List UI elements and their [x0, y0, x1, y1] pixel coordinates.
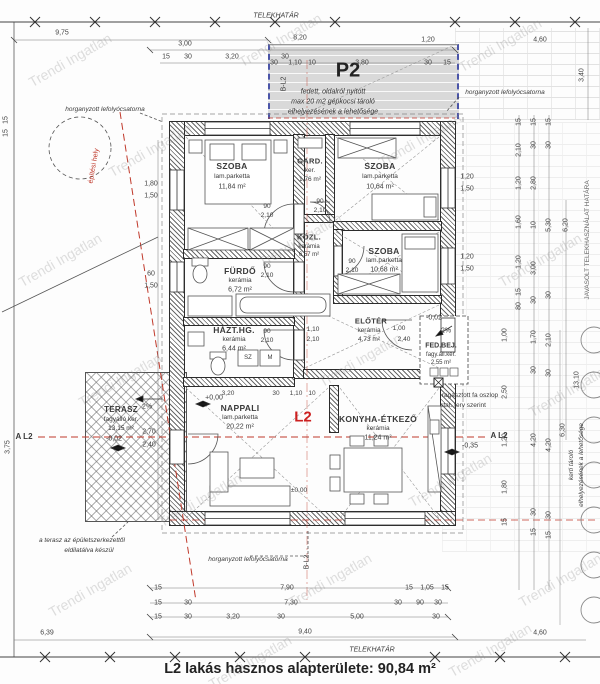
plan-caption: L2 lakás hasznos alapterülete: 90,84 m²: [164, 661, 436, 677]
dim-label: 1,05: [420, 585, 434, 592]
dim-label: 4,20: [531, 433, 538, 447]
door-size: 2,10: [261, 273, 274, 280]
dim-label: 6,30: [560, 423, 567, 437]
appliance-sz: SZ: [244, 355, 252, 361]
room-area-fedbej: 2,55 m²: [431, 360, 451, 366]
dim-label: 1,10: [290, 391, 303, 398]
dim-label: 4,60: [533, 37, 547, 44]
note-terrace-2: eldilatálva készül: [64, 548, 113, 555]
dim-label: 1,80: [502, 480, 509, 494]
door-size: 90: [316, 199, 323, 206]
room-name-szoba3: SZOBA: [368, 247, 399, 256]
room-finish-fedbej: fagy.áll.ker.: [426, 352, 456, 358]
carport-note-line2: max 20 m2 gépkocsi tároló: [291, 99, 375, 106]
dim-label: 2,80: [531, 176, 538, 190]
dim-label: 15: [546, 118, 553, 126]
dim-label: 10: [531, 221, 538, 229]
window-size: 1,50: [460, 266, 474, 273]
dim-label: 1,50: [144, 283, 158, 290]
section-marker-b-l2-top: B-L2: [281, 77, 288, 92]
note-proposed-boundary: JAVASOLT TELEKHASZNÁLAT HATÁRA: [585, 180, 592, 299]
dim-label: 30: [394, 600, 402, 607]
carport-note-line3: elhelyezésének a lehetősége: [288, 109, 378, 116]
dim-label: 3,80: [355, 60, 369, 67]
level-fedbej: -0,02: [426, 315, 442, 322]
dim-label: 1,70: [531, 330, 538, 344]
room-area-kozl: 6,57 m²: [299, 252, 319, 258]
door-size: 2,10: [346, 268, 359, 275]
opening-size: 2,10: [307, 337, 320, 344]
dim-label: 4,60: [533, 630, 547, 637]
window-size: 1,20: [460, 174, 474, 181]
room-finish-szoba3: lam.parketta: [366, 258, 402, 265]
dim-label: 15: [154, 585, 162, 592]
room-area-hazthg: 6,44 m²: [222, 346, 246, 353]
dim-label: 15: [162, 54, 170, 61]
window-size: 1,50: [460, 186, 474, 193]
level-terasz: -0,02: [106, 436, 122, 443]
dim-label: 10: [308, 60, 316, 67]
dim-label: 15: [3, 116, 10, 124]
note-gutter-topleft: horganyzott lefolyócsatorna: [65, 107, 145, 114]
room-area-konyha: 11,24 m²: [364, 435, 391, 442]
dim-label: 6,20: [563, 218, 570, 232]
dim-label: 2,40: [142, 442, 156, 449]
room-finish-nappali: lam.parketta: [222, 415, 258, 422]
room-finish-hazthg: kerámia: [222, 337, 245, 344]
dim-label: 80: [516, 302, 523, 310]
dim-label: 30: [277, 614, 285, 621]
level-outside: -0,35: [462, 443, 478, 450]
dim-label: 30: [434, 600, 442, 607]
dim-label: 30: [531, 508, 538, 516]
dim-label: 15: [441, 585, 449, 592]
room-finish-konyha: kerámia: [366, 426, 389, 433]
room-name-eloter: ELŐTÉR: [355, 317, 387, 325]
section-marker-a-l2-left: A L2: [15, 433, 32, 441]
dim-label: 30: [270, 60, 278, 67]
dim-label: 3,00: [178, 41, 192, 48]
dim-label: 3,75: [5, 440, 12, 454]
dim-label: 1,80: [144, 181, 158, 188]
room-area-szoba3: 10,68 m²: [370, 267, 398, 274]
dim-label: 15: [3, 129, 10, 137]
room-finish-eloter: kerámia: [357, 328, 380, 335]
room-name-hazthg: HÁZT.HG.: [213, 326, 255, 335]
note-gutter-topright: horganyzott lefolyócsatorna: [465, 90, 545, 97]
dim-label: 15: [516, 288, 523, 296]
dim-label: 15: [531, 118, 538, 126]
note-gutter-bottom: horganyzott lefolyócsatorna: [208, 557, 288, 564]
room-area-szoba2: 10,64 m²: [366, 184, 394, 191]
dim-label: 15: [546, 531, 553, 539]
dim-label: 90: [416, 600, 424, 607]
room-name-gard: GARD.: [297, 157, 323, 165]
dim-label: 30: [424, 60, 432, 67]
level-zero: +0,00: [205, 395, 223, 402]
dim-label: 15: [154, 614, 162, 621]
dim-label: 9,40: [298, 629, 312, 636]
unit-label-l2: L2: [294, 409, 312, 426]
room-area-terasz: 13,15 m²: [108, 426, 134, 433]
dim-label: 1,00: [502, 328, 509, 342]
room-name-terasz: TERASZ: [104, 406, 138, 414]
dim-label: 15: [154, 600, 162, 607]
window-size: 1,20: [460, 254, 474, 261]
room-finish-szoba1: lam.parketta: [214, 174, 250, 181]
dim-label: 1,60: [516, 215, 523, 229]
section-marker-b-l2-bottom: B-L2: [304, 555, 311, 570]
dim-label: 4,20: [546, 438, 553, 452]
dim-label: 1,10: [288, 60, 302, 67]
dim-label: 15: [531, 528, 538, 536]
dim-label: 30: [432, 614, 440, 621]
plot-boundary-label-top: TELEKHATÁR: [253, 13, 298, 20]
room-finish-gard: ker.: [305, 168, 315, 175]
dim-label: 3,20: [222, 391, 235, 398]
door-size: 2,10: [314, 208, 327, 215]
door-size: 2,10: [261, 213, 274, 220]
dim-label: 3,40: [579, 68, 586, 82]
dim-label: 1,20: [421, 37, 435, 44]
dim-label: 30: [531, 366, 538, 374]
room-name-fedbej: FED.BEJ.: [425, 343, 457, 350]
dim-label: 2,70: [142, 429, 156, 436]
room-name-konyha: KONYHA-ÉTKEZŐ: [339, 415, 417, 424]
dim-label: 1,20: [502, 433, 509, 447]
dim-label: 2,10: [516, 143, 523, 157]
dim-label: 30: [546, 369, 553, 377]
dim-label: 5,00: [350, 614, 364, 621]
slope-fedbej: 2%: [441, 328, 451, 335]
dim-label: 15: [516, 118, 523, 126]
dim-label: 15: [443, 60, 451, 67]
carport-note-line1: fedett, oldalról nyitott: [301, 89, 366, 96]
dim-label: 30: [184, 614, 192, 621]
door-size: 90: [263, 204, 270, 211]
note-garden-1: kerti tároló: [569, 450, 576, 480]
dim-label: 7,90: [280, 585, 294, 592]
furniture: [188, 138, 441, 506]
dim-label: 15: [502, 518, 509, 526]
room-name-nappali: NAPPALI: [221, 404, 260, 413]
dim-label: 9,75: [55, 30, 69, 37]
appliance-m: M: [268, 355, 273, 361]
level-pm: ±0,00: [291, 488, 307, 495]
note-column-1: ragasztott fa oszlop: [442, 393, 498, 400]
dim-label: 30: [184, 54, 192, 61]
room-area-nappali: 20,22 m²: [226, 424, 254, 431]
room-finish-terasz: fagyálló ker.: [104, 417, 139, 424]
door-size: 90: [263, 329, 270, 336]
door-size: 2,10: [261, 338, 274, 345]
dim-label: 60: [147, 271, 155, 278]
dim-label: 2,10: [546, 333, 553, 347]
dim-label: 30: [546, 141, 553, 149]
room-name-furdo: FÜRDŐ: [224, 267, 256, 276]
note-column-2: stat. terv szerint: [440, 403, 486, 410]
room-finish-furdo: kerámia: [228, 278, 251, 285]
dim-label: 30: [546, 511, 553, 519]
dim-label: 1,20: [516, 176, 523, 190]
room-area-szoba1: 11,84 m²: [218, 184, 245, 191]
dim-label: 30: [531, 296, 538, 304]
room-name-szoba1: SZOBA: [216, 162, 247, 171]
dim-label: 2,50: [502, 385, 509, 399]
dim-label: 3,20: [226, 614, 240, 621]
room-area-furdo: 6,72 m²: [228, 287, 252, 294]
dim-label: 30: [184, 600, 192, 607]
plot-boundary-label-bottom: TELEKHATÁR: [349, 647, 394, 654]
dim-label: 1,50: [144, 193, 158, 200]
room-area-gard: 1,76 m²: [299, 177, 321, 184]
dim-label: 5,30: [546, 218, 553, 232]
dim-label: 30: [272, 391, 279, 398]
floor-plan: TELEKHATÁR TELEKHATÁR L2 lakás hasznos a…: [0, 0, 600, 684]
door-size: 90: [348, 259, 355, 266]
note-terrace-1: a terasz az épületszerkezettől: [39, 538, 125, 545]
slope-terasz: 2%: [142, 404, 152, 411]
dim-label: 6,39: [40, 630, 54, 637]
room-finish-szoba2: lam.parketta: [362, 174, 398, 181]
dim-label: 30: [546, 291, 553, 299]
dim-label: 30: [531, 141, 538, 149]
dim-label: 15: [405, 585, 413, 592]
dim-label: 10: [308, 391, 315, 398]
note-garden-2: elhelyezésének a lehetősége: [579, 423, 586, 507]
opening-size: 1,10: [307, 327, 320, 334]
